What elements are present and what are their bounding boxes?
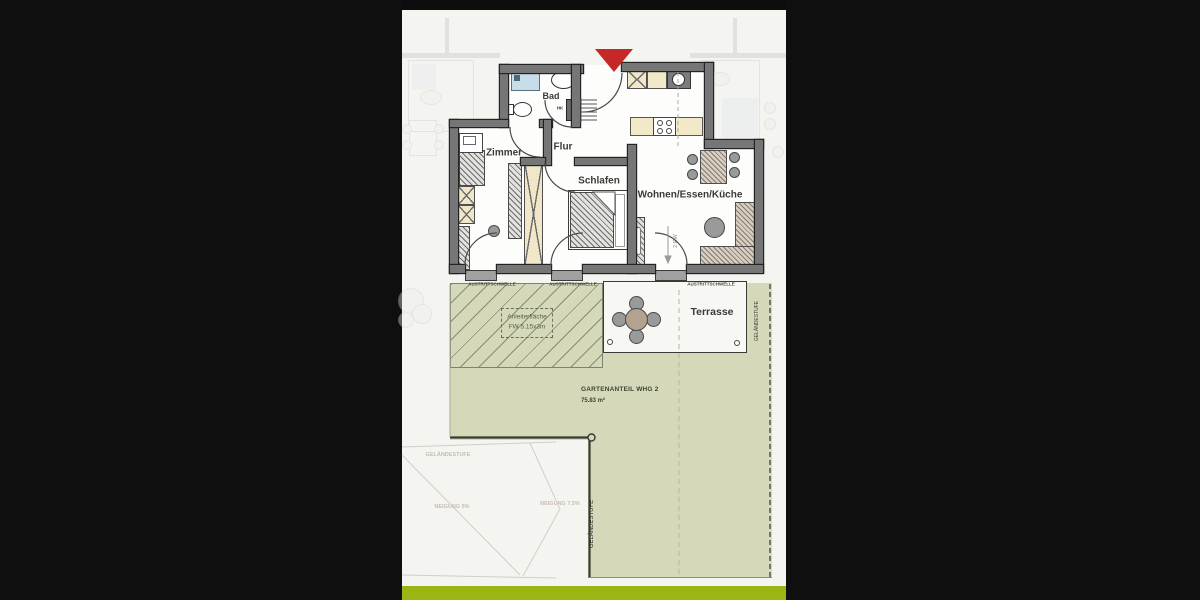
room-label-bad: Bad [542,91,559,101]
wall-segment [575,158,628,165]
dining-chair [687,169,698,180]
bed-headboard [615,194,625,247]
room-label-wohnen: Wohnen/Essen/Küche [638,190,743,201]
burner [666,128,672,134]
neighbor-shower [412,64,436,90]
fire-ladder-label-line2: FW 5.15x3m [509,324,546,331]
terrain-step-label: GELÄNDESTUFE [589,500,595,548]
wall-segment [450,265,465,273]
wall-segment [500,65,508,127]
sofa-bottom [700,246,755,266]
room-label-schlafen: Schlafen [578,176,620,187]
room-label-zimmer: Zimmer [486,148,522,159]
wall-segment [572,65,580,127]
escape-route-label: 2.RW [673,234,679,248]
zimmer-cabinet [459,150,485,186]
neighbor-chair [402,124,412,134]
wall-segment [705,63,713,148]
desk-chair [463,136,476,145]
neighbor-label: GELÄNDESTUFE [426,452,471,458]
kitchen-sink [672,73,685,86]
wall-segment [497,265,551,273]
garden-title: GARTENANTEIL WHG 2 [581,386,659,393]
wall-segment [521,158,545,165]
fire-ladder-label-line1: Anleiterfläche [507,314,546,321]
neighbor-label: NEIGUNG 7.5% [540,501,580,507]
wardrobe [458,186,475,205]
wall-segment [622,63,713,71]
burner [666,120,672,126]
terrace-chair [629,329,644,344]
dining-chair [687,154,698,165]
radiator-label: HK [557,106,564,111]
threshold-label: AUSTRITTSCHWELLE [468,282,516,287]
neighbor-chair [434,124,444,134]
kitchen-cabinet [647,70,667,89]
radiator-slot [636,227,641,255]
stool [488,225,500,237]
wall-segment [450,120,458,273]
zimmer-shelf [458,226,470,270]
neighbor-tree [398,312,414,328]
neighbor-chair [772,146,784,158]
neighbor-chair [434,140,444,150]
bottom-accent-bar [402,586,786,600]
door-threshold [551,270,583,281]
wall-segment [450,120,508,127]
coffee-table [704,217,725,238]
top-strip [402,0,786,10]
neighbor-fixture [710,72,730,86]
terrace-chair [646,312,661,327]
threshold-label: AUSTRITTSCHWELLE [687,282,735,287]
neighbor-fixture [420,90,442,105]
dining-chair [729,167,740,178]
door-threshold [655,270,687,281]
terrace-drain [607,339,613,345]
wall-segment [544,120,551,165]
neighbor-chair [764,118,776,130]
neighbor-wall [402,53,500,58]
neighbor-shower [722,98,758,138]
garden-area-value: 75.83 m² [581,398,605,404]
garden-area-lower [588,440,772,578]
terrain-step-label-right: GELÄNDESTUFE [754,301,760,341]
dining-table [700,150,727,184]
wall-segment [583,265,655,273]
wall-segment [628,145,636,273]
toilet [513,102,532,117]
neighbor-chair [764,102,776,114]
neighbor-chair [402,140,412,150]
threshold-label: AUSTRITTSCHWELLE [549,282,597,287]
neighbor-label: NEIGUNG 5% [434,504,469,510]
terrace-table [625,308,648,331]
bed-mattress [570,192,614,248]
room-label-terrasse: Terrasse [690,306,733,318]
terrace-drain [734,340,740,346]
fridge [627,70,647,89]
door-threshold [465,270,497,281]
wall-segment [500,65,583,73]
neighbor-wall [445,18,449,54]
neighbor-wall [690,53,786,58]
neighbor-tree [412,304,432,324]
shower-drain [514,75,520,81]
floorplan-screenshot: GELÄNDESTUFE NEIGUNG 5% NEIGUNG 7.5% Anl… [0,0,1200,600]
wall-segment [755,140,763,272]
built-in-closet [524,163,543,265]
dining-chair [729,152,740,163]
wall-segment [687,265,763,273]
cooktop [653,117,676,136]
burner [657,128,663,134]
neighbor-table [409,120,437,156]
entrance-marker-icon [595,49,633,72]
burner [657,120,663,126]
room-label-flur: Flur [554,142,573,153]
zimmer-tall-cabinet [508,163,522,239]
wardrobe [458,205,475,224]
neighbor-wall [733,18,737,54]
